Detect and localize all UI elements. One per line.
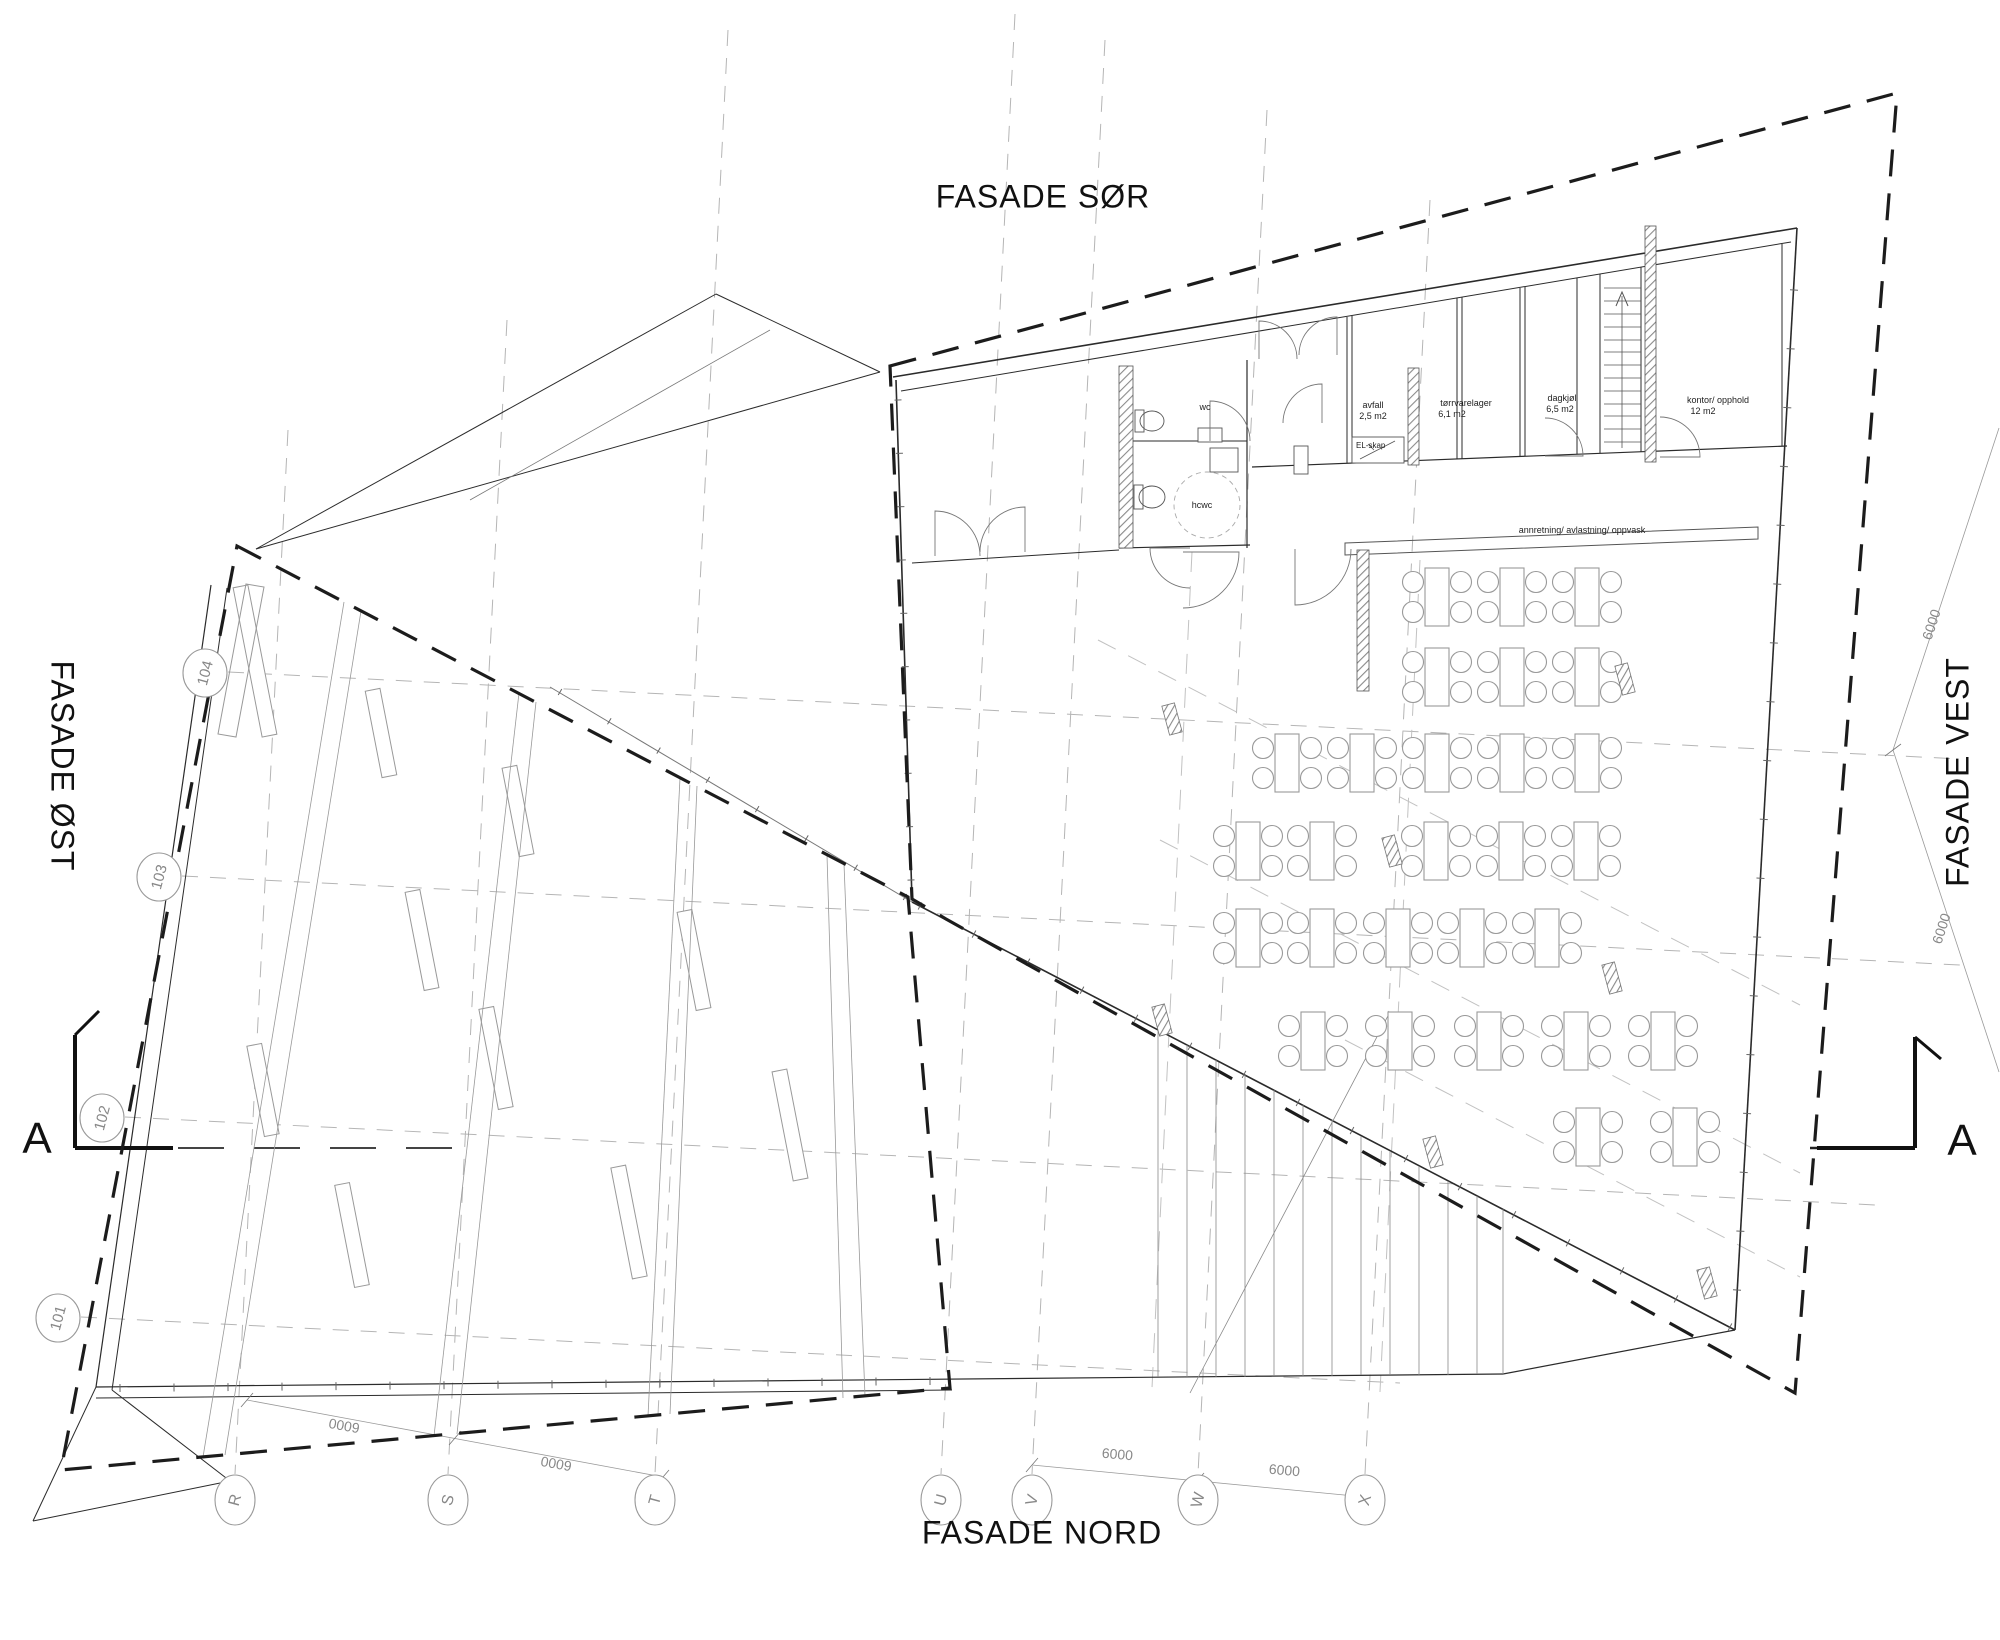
room-label-hcwc: hcwc: [1192, 500, 1213, 510]
dining-table-group: [1214, 822, 1283, 880]
dining-table: [1236, 909, 1260, 967]
chair: [1288, 913, 1309, 934]
chair: [1328, 738, 1349, 759]
chair: [1414, 1016, 1435, 1037]
west-facade-wall: [1735, 228, 1797, 1330]
chair: [1590, 1046, 1611, 1067]
dimension-text: 6000: [1929, 911, 1954, 946]
chair: [1699, 1142, 1720, 1163]
hcwc-sink: [1210, 448, 1238, 472]
column-marker: [1162, 703, 1182, 735]
chair: [1336, 913, 1357, 934]
chair: [1301, 768, 1322, 789]
south-fascia: [893, 228, 1797, 377]
annotation-layer: RSTUVWX104103102101600060006000600060006…: [36, 393, 1954, 1525]
terrace-joint: [434, 693, 519, 1436]
chair: [1336, 856, 1357, 877]
chair: [1366, 1016, 1387, 1037]
dimension-text: 6000: [539, 1453, 573, 1474]
dining-table: [1310, 909, 1334, 967]
room-label-dagkjol: dagkjøl: [1547, 393, 1576, 403]
dining-table: [1460, 909, 1484, 967]
chair: [1450, 826, 1471, 847]
chair: [1455, 1016, 1476, 1037]
kitchen-cabinet: [1294, 446, 1308, 474]
terrace-bottom-edge: [96, 1390, 952, 1398]
dining-table: [1388, 1012, 1412, 1070]
chair: [1455, 1046, 1476, 1067]
room-label-avfall-area: 2,5 m2: [1359, 411, 1387, 421]
hcwc-cistern: [1134, 485, 1143, 509]
floor-plan-svg: RSTUVWX104103102101600060006000600060006…: [0, 0, 2000, 1640]
chair: [1414, 1046, 1435, 1067]
dining-table-group: [1288, 909, 1357, 967]
dining-table-group: [1552, 822, 1621, 880]
dining-table: [1673, 1108, 1697, 1166]
chair: [1526, 572, 1547, 593]
room-label-wc: wc: [1199, 402, 1211, 412]
room-label-lager-area: 6,1 m2: [1438, 409, 1466, 419]
dining-table: [1500, 568, 1524, 626]
chair: [1477, 856, 1498, 877]
chair: [1486, 943, 1507, 964]
dining-table-group: [1438, 909, 1507, 967]
door-arc-avfall: [1283, 384, 1322, 423]
room-label-dagkjol-area: 6,5 m2: [1546, 404, 1574, 414]
chair: [1279, 1046, 1300, 1067]
chair: [1451, 682, 1472, 703]
dining-table-group: [1513, 909, 1582, 967]
chair: [1403, 768, 1424, 789]
chair: [1526, 602, 1547, 623]
chair: [1262, 913, 1283, 934]
chair: [1253, 768, 1274, 789]
dining-table: [1575, 568, 1599, 626]
terrace-joint: [225, 611, 361, 1455]
chair: [1288, 856, 1309, 877]
amphi-stringer: [1190, 1012, 1390, 1393]
planter: [405, 889, 439, 990]
facade-label-east: FASADE ØST: [44, 661, 81, 872]
dining-table-group: [1651, 1108, 1720, 1166]
chair: [1402, 856, 1423, 877]
chair: [1262, 826, 1283, 847]
chair: [1478, 652, 1499, 673]
chair: [1600, 826, 1621, 847]
chair: [1403, 682, 1424, 703]
chair: [1699, 1112, 1720, 1133]
dining-table-group: [1477, 822, 1546, 880]
chair: [1477, 826, 1498, 847]
door-arc-vestibule: [935, 511, 980, 556]
dining-table: [1575, 648, 1599, 706]
chair: [1553, 602, 1574, 623]
chair: [1364, 913, 1385, 934]
dining-table-group: [1554, 1108, 1623, 1166]
facade-label-west: FASADE VEST: [1940, 657, 1977, 887]
chair: [1561, 913, 1582, 934]
room-label-lager: tørrvarelager: [1440, 398, 1492, 408]
dining-table: [1564, 1012, 1588, 1070]
grid-line-103: [182, 876, 1960, 965]
chair: [1262, 856, 1283, 877]
column-marker: [1423, 1136, 1443, 1168]
room-label-avfall: avfall: [1362, 400, 1383, 410]
chair: [1513, 943, 1534, 964]
chair: [1327, 1016, 1348, 1037]
chair: [1552, 826, 1573, 847]
dining-table-group: [1455, 1012, 1524, 1070]
dining-table-group: [1402, 822, 1471, 880]
planter: [335, 1183, 370, 1288]
chair: [1262, 943, 1283, 964]
wall-hatched: [1357, 550, 1369, 691]
chair: [1366, 1046, 1387, 1067]
room-label-kontor: kontor/ opphold: [1687, 395, 1749, 405]
terrace-joint: [827, 855, 843, 1398]
dining-table-group: [1553, 568, 1622, 626]
chair: [1438, 913, 1459, 934]
chair: [1554, 1112, 1575, 1133]
building-layer: [33, 226, 1999, 1521]
dining-table: [1275, 734, 1299, 792]
planter: [479, 1007, 513, 1110]
door-arc-kitchen: [1299, 317, 1337, 355]
dining-table: [1425, 568, 1449, 626]
chair: [1651, 1142, 1672, 1163]
room-label-el-skap: EL-skap: [1356, 441, 1386, 450]
wall-hatched: [1408, 368, 1419, 465]
chair: [1214, 943, 1235, 964]
chair: [1376, 738, 1397, 759]
chair: [1601, 738, 1622, 759]
grid-line-S: [448, 320, 507, 1474]
chair: [1301, 738, 1322, 759]
terrace-layer: [233, 585, 808, 1288]
canopy-edge: [256, 372, 880, 549]
chair: [1542, 1046, 1563, 1067]
chair: [1526, 682, 1547, 703]
dining-table: [1500, 734, 1524, 792]
section-marker-a-right: A: [1947, 1116, 1976, 1166]
chair: [1601, 682, 1622, 703]
chair: [1403, 602, 1424, 623]
dimension-text: 6000: [1101, 1445, 1134, 1464]
column-marker: [1152, 1004, 1172, 1036]
dining-table: [1651, 1012, 1675, 1070]
grid-line-T: [655, 30, 728, 1474]
chair: [1451, 738, 1472, 759]
dining-table: [1576, 1108, 1600, 1166]
dim-tick: [1885, 744, 1901, 756]
chair: [1451, 572, 1472, 593]
chair: [1601, 572, 1622, 593]
canopy-edge: [256, 294, 716, 549]
dining-table-group: [1542, 1012, 1611, 1070]
chair: [1602, 1142, 1623, 1163]
dining-table: [1350, 734, 1374, 792]
room-label-anretning: annretning/ avlastning/ oppvask: [1519, 525, 1646, 535]
dimension-text: 6000: [1268, 1461, 1301, 1480]
door-arc-hcwc: [1150, 548, 1190, 588]
chair: [1553, 768, 1574, 789]
dining-table-group: [1553, 648, 1622, 706]
chair: [1602, 1112, 1623, 1133]
dining-table: [1386, 909, 1410, 967]
dining-table-group: [1478, 734, 1547, 792]
terrace-joint: [844, 864, 865, 1396]
chair: [1478, 682, 1499, 703]
chair: [1651, 1112, 1672, 1133]
dim-tick: [241, 1393, 253, 1407]
chair: [1552, 856, 1573, 877]
chair: [1450, 856, 1471, 877]
dining-table-group: [1328, 734, 1397, 792]
chair: [1478, 768, 1499, 789]
dining-table: [1500, 648, 1524, 706]
terrace-wedge: [112, 1390, 230, 1481]
furniture-layer: [1152, 568, 1720, 1299]
planter: [247, 1043, 279, 1136]
chair: [1214, 913, 1235, 934]
dining-table: [1425, 734, 1449, 792]
chair: [1601, 768, 1622, 789]
floor-plan-canvas: RSTUVWX104103102101600060006000600060006…: [0, 0, 2000, 1640]
chair: [1478, 572, 1499, 593]
chair: [1451, 652, 1472, 673]
column-marker: [1382, 835, 1402, 867]
planter: [233, 585, 277, 737]
chair: [1402, 826, 1423, 847]
chair: [1486, 913, 1507, 934]
chair: [1677, 1046, 1698, 1067]
terrace-bottom-edge: [96, 1374, 1503, 1387]
grid-line-104: [228, 672, 1960, 759]
dining-table: [1301, 1012, 1325, 1070]
dining-table-group: [1403, 648, 1472, 706]
chair: [1451, 768, 1472, 789]
chair: [1478, 738, 1499, 759]
chair: [1214, 826, 1235, 847]
planter: [677, 909, 711, 1010]
chair: [1590, 1016, 1611, 1037]
chair: [1525, 826, 1546, 847]
dimension-text: 6000: [1919, 607, 1944, 642]
section-marker-a-left: A: [22, 1114, 51, 1164]
room-label-kontor-area: 12 m2: [1690, 406, 1715, 416]
dining-table: [1477, 1012, 1501, 1070]
section-symbol-right: [1915, 1037, 1941, 1059]
chair: [1553, 652, 1574, 673]
canopy-inner: [470, 330, 770, 500]
dining-table: [1574, 822, 1598, 880]
chair: [1403, 652, 1424, 673]
chair: [1513, 913, 1534, 934]
dining-table-group: [1288, 822, 1357, 880]
chair: [1451, 602, 1472, 623]
column-marker: [1697, 1267, 1717, 1299]
dining-table: [1236, 822, 1260, 880]
chair: [1503, 1016, 1524, 1037]
dining-table-group: [1478, 648, 1547, 706]
chair: [1403, 572, 1424, 593]
chair: [1328, 768, 1349, 789]
south-fascia-inner: [901, 242, 1791, 391]
chair: [1412, 943, 1433, 964]
chair: [1526, 652, 1547, 673]
door-arc-kitchen: [1259, 321, 1297, 359]
chair: [1214, 856, 1235, 877]
glass-wall-extension: [550, 687, 912, 902]
dining-table-group: [1279, 1012, 1348, 1070]
dining-table: [1575, 734, 1599, 792]
section-symbol-left: [75, 1011, 99, 1035]
chair: [1327, 1046, 1348, 1067]
chair: [1561, 943, 1582, 964]
dining-table: [1425, 648, 1449, 706]
dining-table-group: [1403, 734, 1472, 792]
dining-table-group: [1366, 1012, 1435, 1070]
chair: [1677, 1016, 1698, 1037]
chair: [1364, 943, 1385, 964]
wall-hatched: [1119, 366, 1133, 548]
chair: [1336, 826, 1357, 847]
terrace-bottom-edge: [1503, 1330, 1735, 1374]
wall-hatched: [1645, 226, 1656, 462]
terrace-wedge: [33, 1481, 230, 1521]
dining-table: [1424, 822, 1448, 880]
chair: [1336, 943, 1357, 964]
planter: [772, 1069, 808, 1181]
chair: [1629, 1046, 1650, 1067]
chair: [1253, 738, 1274, 759]
chair: [1438, 943, 1459, 964]
chair: [1478, 602, 1499, 623]
dining-table-group: [1403, 568, 1472, 626]
chair: [1526, 768, 1547, 789]
dining-table-group: [1253, 734, 1322, 792]
terrace-left-band: [96, 585, 211, 1387]
door-arc-vestibule: [980, 507, 1025, 552]
chair: [1412, 913, 1433, 934]
chair: [1525, 856, 1546, 877]
chair: [1542, 1016, 1563, 1037]
chair: [1601, 602, 1622, 623]
chair: [1288, 826, 1309, 847]
grid-line-W: [1198, 110, 1267, 1474]
terrace-joint: [648, 778, 680, 1416]
canopy-edge: [716, 294, 880, 372]
wc-cistern: [1135, 410, 1144, 432]
dining-table-group: [1214, 909, 1283, 967]
chair: [1553, 738, 1574, 759]
chair: [1553, 572, 1574, 593]
facade-label-north: FASADE NORD: [922, 1515, 1162, 1552]
grid-line-U: [941, 14, 1015, 1474]
chair: [1554, 1142, 1575, 1163]
facade-label-south: FASADE SØR: [936, 179, 1151, 216]
chair: [1503, 1046, 1524, 1067]
terrace-joint: [457, 702, 536, 1434]
chair: [1526, 738, 1547, 759]
dining-table-group: [1553, 734, 1622, 792]
grid-line-V: [1032, 40, 1105, 1474]
dining-table: [1535, 909, 1559, 967]
dimension-text: 6000: [327, 1415, 361, 1436]
chair: [1288, 943, 1309, 964]
dining-table-group: [1629, 1012, 1698, 1070]
chair: [1403, 738, 1424, 759]
planter: [365, 688, 397, 777]
planter: [502, 765, 534, 856]
door-arc-dining: [1295, 549, 1351, 605]
planter: [611, 1165, 647, 1279]
dining-table-group: [1478, 568, 1547, 626]
chair: [1629, 1016, 1650, 1037]
terrace-left-band: [112, 588, 227, 1390]
chair: [1553, 682, 1574, 703]
column-marker: [1602, 962, 1622, 994]
vestibule-wall: [912, 550, 1119, 563]
chair: [1279, 1016, 1300, 1037]
chair: [1376, 768, 1397, 789]
grid-line-101: [81, 1317, 1400, 1383]
dining-table: [1499, 822, 1523, 880]
dining-table: [1310, 822, 1334, 880]
chair: [1600, 856, 1621, 877]
